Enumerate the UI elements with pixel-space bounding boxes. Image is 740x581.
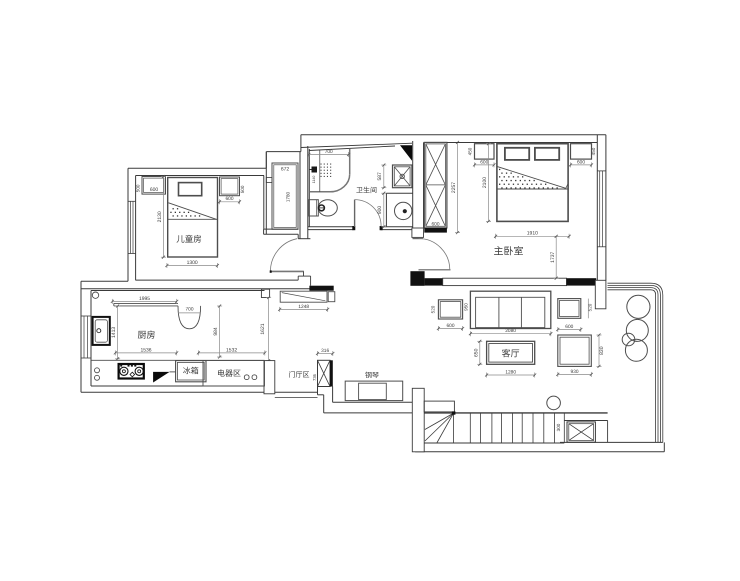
svg-text:1413: 1413 xyxy=(111,327,117,338)
svg-text:500: 500 xyxy=(135,184,140,192)
svg-text:1532: 1532 xyxy=(226,348,237,354)
svg-text:电器区: 电器区 xyxy=(217,369,241,378)
svg-text:672: 672 xyxy=(281,167,290,173)
svg-text:1300: 1300 xyxy=(187,260,198,266)
svg-text:冰箱: 冰箱 xyxy=(183,367,199,376)
svg-text:600: 600 xyxy=(225,196,233,202)
svg-text:650: 650 xyxy=(473,348,479,357)
svg-text:1995: 1995 xyxy=(139,296,150,302)
svg-text:客厅: 客厅 xyxy=(502,349,520,359)
svg-text:500: 500 xyxy=(240,185,245,193)
svg-text:1780: 1780 xyxy=(286,191,291,202)
svg-text:1280: 1280 xyxy=(505,370,516,376)
svg-text:卫生间: 卫生间 xyxy=(356,187,377,195)
svg-text:门厅区: 门厅区 xyxy=(289,371,310,379)
svg-text:厨房: 厨房 xyxy=(137,330,155,340)
svg-text:450: 450 xyxy=(591,147,596,155)
svg-text:600: 600 xyxy=(480,160,488,166)
svg-text:2080: 2080 xyxy=(505,328,516,334)
svg-text:600: 600 xyxy=(150,187,159,193)
svg-text:520: 520 xyxy=(431,305,436,313)
svg-text:900: 900 xyxy=(377,206,383,215)
svg-text:600: 600 xyxy=(565,324,573,330)
svg-text:600: 600 xyxy=(577,160,585,166)
svg-text:830: 830 xyxy=(599,346,605,355)
svg-text:2257: 2257 xyxy=(451,182,457,193)
svg-text:700: 700 xyxy=(325,149,333,155)
svg-text:700: 700 xyxy=(185,307,193,313)
svg-text:2130: 2130 xyxy=(157,211,163,222)
svg-text:1621: 1621 xyxy=(260,323,266,334)
svg-text:主卧室: 主卧室 xyxy=(494,246,524,258)
svg-text:316: 316 xyxy=(321,348,329,354)
svg-text:1536: 1536 xyxy=(140,348,151,354)
svg-text:984: 984 xyxy=(213,327,219,336)
svg-text:950: 950 xyxy=(464,303,469,311)
svg-text:2100: 2100 xyxy=(482,177,488,188)
svg-text:600: 600 xyxy=(446,323,454,329)
svg-text:儿童房: 儿童房 xyxy=(176,234,202,244)
svg-text:1910: 1910 xyxy=(527,231,538,237)
svg-text:450: 450 xyxy=(467,147,472,155)
svg-text:587: 587 xyxy=(377,172,383,181)
svg-text:1737: 1737 xyxy=(550,251,556,262)
svg-text:1140: 1140 xyxy=(312,176,316,184)
svg-text:300: 300 xyxy=(556,423,561,431)
svg-text:1248: 1248 xyxy=(298,304,309,310)
svg-text:600: 600 xyxy=(431,222,439,228)
svg-text:930: 930 xyxy=(571,369,579,375)
svg-text:736: 736 xyxy=(312,373,317,381)
svg-text:钢琴: 钢琴 xyxy=(365,372,379,380)
